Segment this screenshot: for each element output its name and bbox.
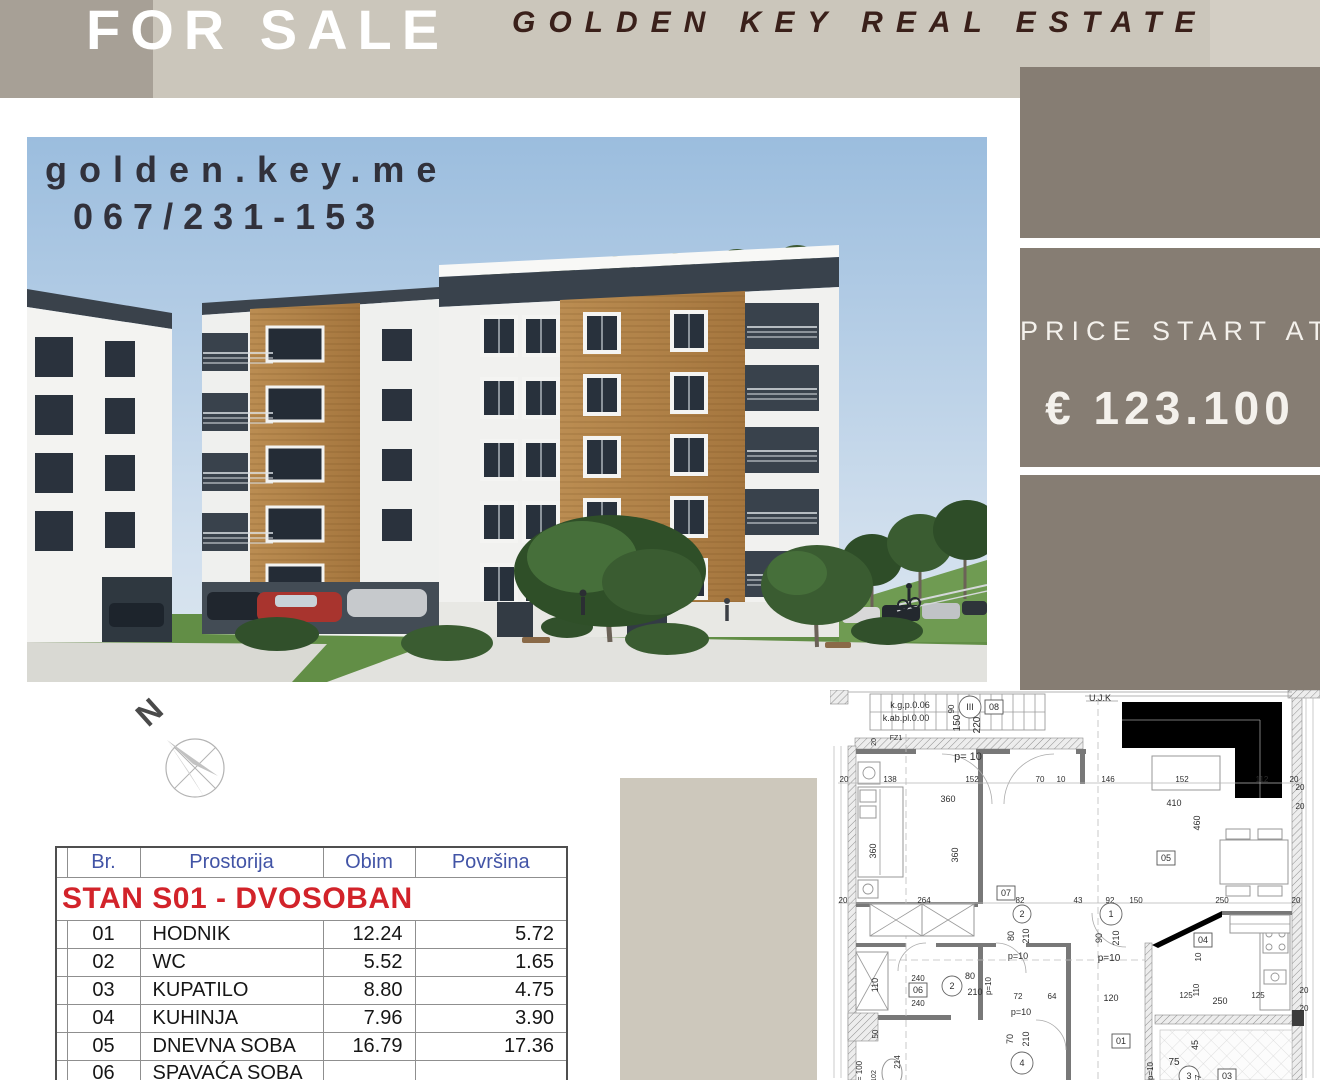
svg-text:80: 80 <box>1006 931 1016 941</box>
svg-text:20: 20 <box>1296 783 1305 792</box>
price-value: € 123.100 <box>1020 381 1320 435</box>
svg-text:05: 05 <box>1161 853 1171 863</box>
svg-text:08: 08 <box>989 702 999 712</box>
svg-text:k.g.p.0.06: k.g.p.0.06 <box>890 700 930 710</box>
price-block: PRICE START AT € 123.100 <box>1020 248 1320 467</box>
svg-text:3: 3 <box>1186 1071 1191 1080</box>
svg-text:10: 10 <box>1194 952 1203 961</box>
column-header <box>56 847 67 877</box>
svg-text:50: 50 <box>871 1029 880 1038</box>
svg-text:45: 45 <box>1190 1040 1200 1050</box>
svg-text:210: 210 <box>1021 928 1031 943</box>
svg-text:= 100: = 100 <box>855 1060 864 1080</box>
svg-text:4: 4 <box>1019 1058 1024 1068</box>
svg-text:III: III <box>966 702 974 712</box>
svg-text:p=10: p=10 <box>1011 1007 1031 1017</box>
svg-text:210: 210 <box>1021 1031 1031 1046</box>
for-sale-title: FOR SALE <box>86 0 449 62</box>
svg-text:U.J.K: U.J.K <box>1089 693 1111 703</box>
price-label: PRICE START AT <box>1020 316 1320 347</box>
room-table-wrap: Br.ProstorijaObimPovršina STAN S01 - DVO… <box>55 846 570 1080</box>
svg-text:210: 210 <box>967 987 982 997</box>
section-title: STAN S01 - DVOSOBAN <box>56 877 567 920</box>
column-header: Obim <box>323 847 415 877</box>
svg-text:20: 20 <box>1300 1004 1309 1013</box>
svg-text:264: 264 <box>917 896 931 905</box>
svg-text:240: 240 <box>911 999 925 1008</box>
svg-text:07: 07 <box>1001 888 1011 898</box>
svg-text:04: 04 <box>1198 935 1208 945</box>
decor-panel <box>620 778 817 1080</box>
table-row: 05DNEVNA SOBA16.7917.36 <box>56 1032 567 1060</box>
svg-text:152: 152 <box>1175 775 1189 784</box>
decor-block-bottom <box>1020 475 1320 691</box>
svg-text:p=10: p=10 <box>984 976 993 995</box>
svg-text:p= 10: p= 10 <box>954 751 982 763</box>
svg-text:20: 20 <box>1292 896 1301 905</box>
svg-text:k.ab.pl.0.00: k.ab.pl.0.00 <box>883 713 930 723</box>
room-table: Br.ProstorijaObimPovršina STAN S01 - DVO… <box>55 846 568 1080</box>
flyer-page: FOR SALE GOLDEN KEY REAL ESTATE <box>0 0 1320 1080</box>
svg-text:250: 250 <box>1212 996 1227 1006</box>
table-header-row: Br.ProstorijaObimPovršina <box>56 847 567 877</box>
svg-text:360: 360 <box>950 847 960 862</box>
table-row: 03KUPATILO8.804.75 <box>56 976 567 1004</box>
svg-text:80: 80 <box>965 971 975 981</box>
svg-text:250: 250 <box>1215 896 1229 905</box>
svg-text:138: 138 <box>883 775 897 784</box>
svg-text:110: 110 <box>1192 983 1201 996</box>
svg-text:2: 2 <box>1019 909 1024 919</box>
north-label: N <box>129 692 170 733</box>
website-text: golden.key.me <box>45 149 448 191</box>
svg-text:2: 2 <box>949 981 954 991</box>
svg-text:70: 70 <box>1005 1034 1015 1044</box>
svg-text:p=10: p=10 <box>1146 1061 1155 1080</box>
svg-text:01: 01 <box>1116 1036 1126 1046</box>
table-row: 04KUHINJA7.963.90 <box>56 1004 567 1032</box>
svg-text:FZ1: FZ1 <box>890 735 903 742</box>
svg-text:20: 20 <box>840 775 849 784</box>
svg-text:p=10: p=10 <box>1098 953 1121 964</box>
svg-text:410: 410 <box>1166 798 1181 808</box>
svg-text:90: 90 <box>947 704 956 713</box>
svg-text:p=10: p=10 <box>1008 951 1028 961</box>
svg-text:43: 43 <box>1074 896 1083 905</box>
svg-text:06: 06 <box>913 985 923 995</box>
phone-text: 067/231-153 <box>73 196 385 238</box>
svg-text:220: 220 <box>972 716 983 733</box>
svg-text:20: 20 <box>1296 802 1305 811</box>
svg-text:120: 120 <box>1103 993 1118 1003</box>
svg-text:10: 10 <box>1057 775 1066 784</box>
column-header: Br. <box>67 847 140 877</box>
svg-text:146: 146 <box>1101 775 1115 784</box>
svg-text:82: 82 <box>1016 896 1025 905</box>
svg-text:75: 75 <box>1168 1057 1180 1068</box>
svg-text:72: 72 <box>1014 992 1023 1001</box>
table-row: 02WC5.521.65 <box>56 948 567 976</box>
svg-text:214: 214 <box>893 1055 902 1069</box>
compass-rose: N <box>123 692 239 808</box>
floor-plan-drawing: k.g.p.0.06k.ab.pl.0.00III089015022020FZ1… <box>830 690 1320 1080</box>
svg-text:210: 210 <box>1111 930 1121 945</box>
svg-text:460: 460 <box>1192 815 1202 830</box>
svg-text:125: 125 <box>1251 991 1265 1000</box>
decor-block-top <box>1020 67 1320 238</box>
svg-text:112: 112 <box>1256 775 1269 784</box>
svg-text:152: 152 <box>965 775 979 784</box>
column-header: Prostorija <box>140 847 323 877</box>
svg-text:150: 150 <box>952 714 963 731</box>
table-row: 01HODNIK12.245.72 <box>56 920 567 948</box>
svg-text:90: 90 <box>1094 933 1104 943</box>
svg-text:150: 150 <box>1129 896 1143 905</box>
svg-text:20: 20 <box>1300 986 1309 995</box>
svg-text:110: 110 <box>870 978 880 992</box>
svg-text:77: 77 <box>1194 1074 1203 1080</box>
svg-text:64: 64 <box>1048 992 1057 1001</box>
column-header: Površina <box>415 847 567 877</box>
svg-text:360: 360 <box>868 843 878 858</box>
svg-text:1: 1 <box>1108 909 1113 919</box>
svg-text:240: 240 <box>911 974 925 983</box>
svg-text:20: 20 <box>839 896 848 905</box>
svg-text:70: 70 <box>1036 775 1045 784</box>
svg-text:102: 102 <box>871 1070 878 1080</box>
svg-text:360: 360 <box>940 794 955 804</box>
brand-title: GOLDEN KEY REAL ESTATE <box>512 6 1208 40</box>
svg-text:03: 03 <box>1222 1071 1232 1080</box>
table-row: 06SPAVAĆA SOBA <box>56 1060 567 1080</box>
svg-text:20: 20 <box>871 738 878 746</box>
table-section-row: STAN S01 - DVOSOBAN <box>56 877 567 920</box>
